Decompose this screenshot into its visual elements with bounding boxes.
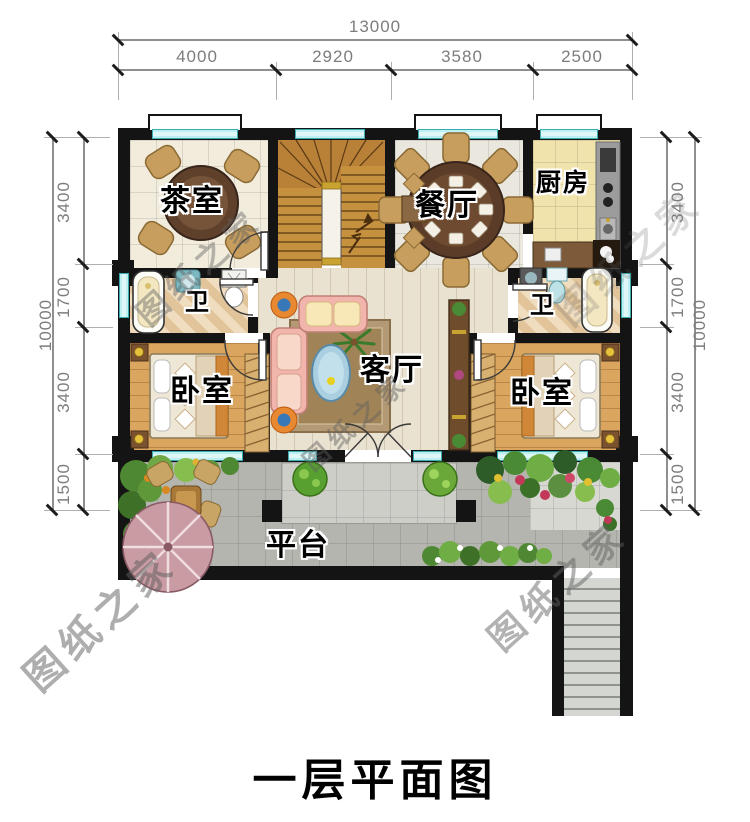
bedroom-right-label: 卧室 — [510, 378, 574, 410]
dim-top-seg: 3580 — [422, 47, 502, 67]
dim-right-seg: 3400 — [668, 172, 688, 232]
dim-left-total: 10000 — [36, 285, 56, 365]
dim-left-seg: 3400 — [54, 362, 74, 422]
dim-right-seg: 1500 — [668, 454, 688, 514]
dim-right-seg: 1700 — [668, 267, 688, 327]
dim-top-seg: 2920 — [293, 47, 373, 67]
dimension-line — [118, 39, 632, 41]
dimension-line — [118, 69, 632, 71]
terrace-label: 平台 — [266, 530, 330, 562]
dim-right-seg: 3400 — [668, 362, 688, 422]
page-title: 一层平面图 — [0, 744, 750, 808]
floor-plan: 茶室 餐厅 厨房 卫 卫 客厅 卧室 卧室 平台 图纸之家 图纸之家 图纸之家 … — [0, 0, 750, 822]
dining-label: 餐厅 — [415, 190, 479, 222]
dim-left-seg: 1700 — [54, 267, 74, 327]
dim-right-total: 10000 — [690, 285, 710, 365]
bedroom-left-label: 卧室 — [170, 376, 234, 408]
dim-top-seg: 4000 — [157, 47, 237, 67]
dim-left-seg: 1500 — [54, 454, 74, 514]
bush-row — [422, 541, 552, 566]
kitchen-label: 厨房 — [536, 170, 590, 196]
tea-room-label: 茶室 — [160, 186, 224, 218]
staircase — [278, 140, 385, 268]
dim-left-seg: 3400 — [54, 172, 74, 232]
dim-top-total: 13000 — [325, 17, 425, 37]
dim-top-seg: 2500 — [542, 47, 622, 67]
